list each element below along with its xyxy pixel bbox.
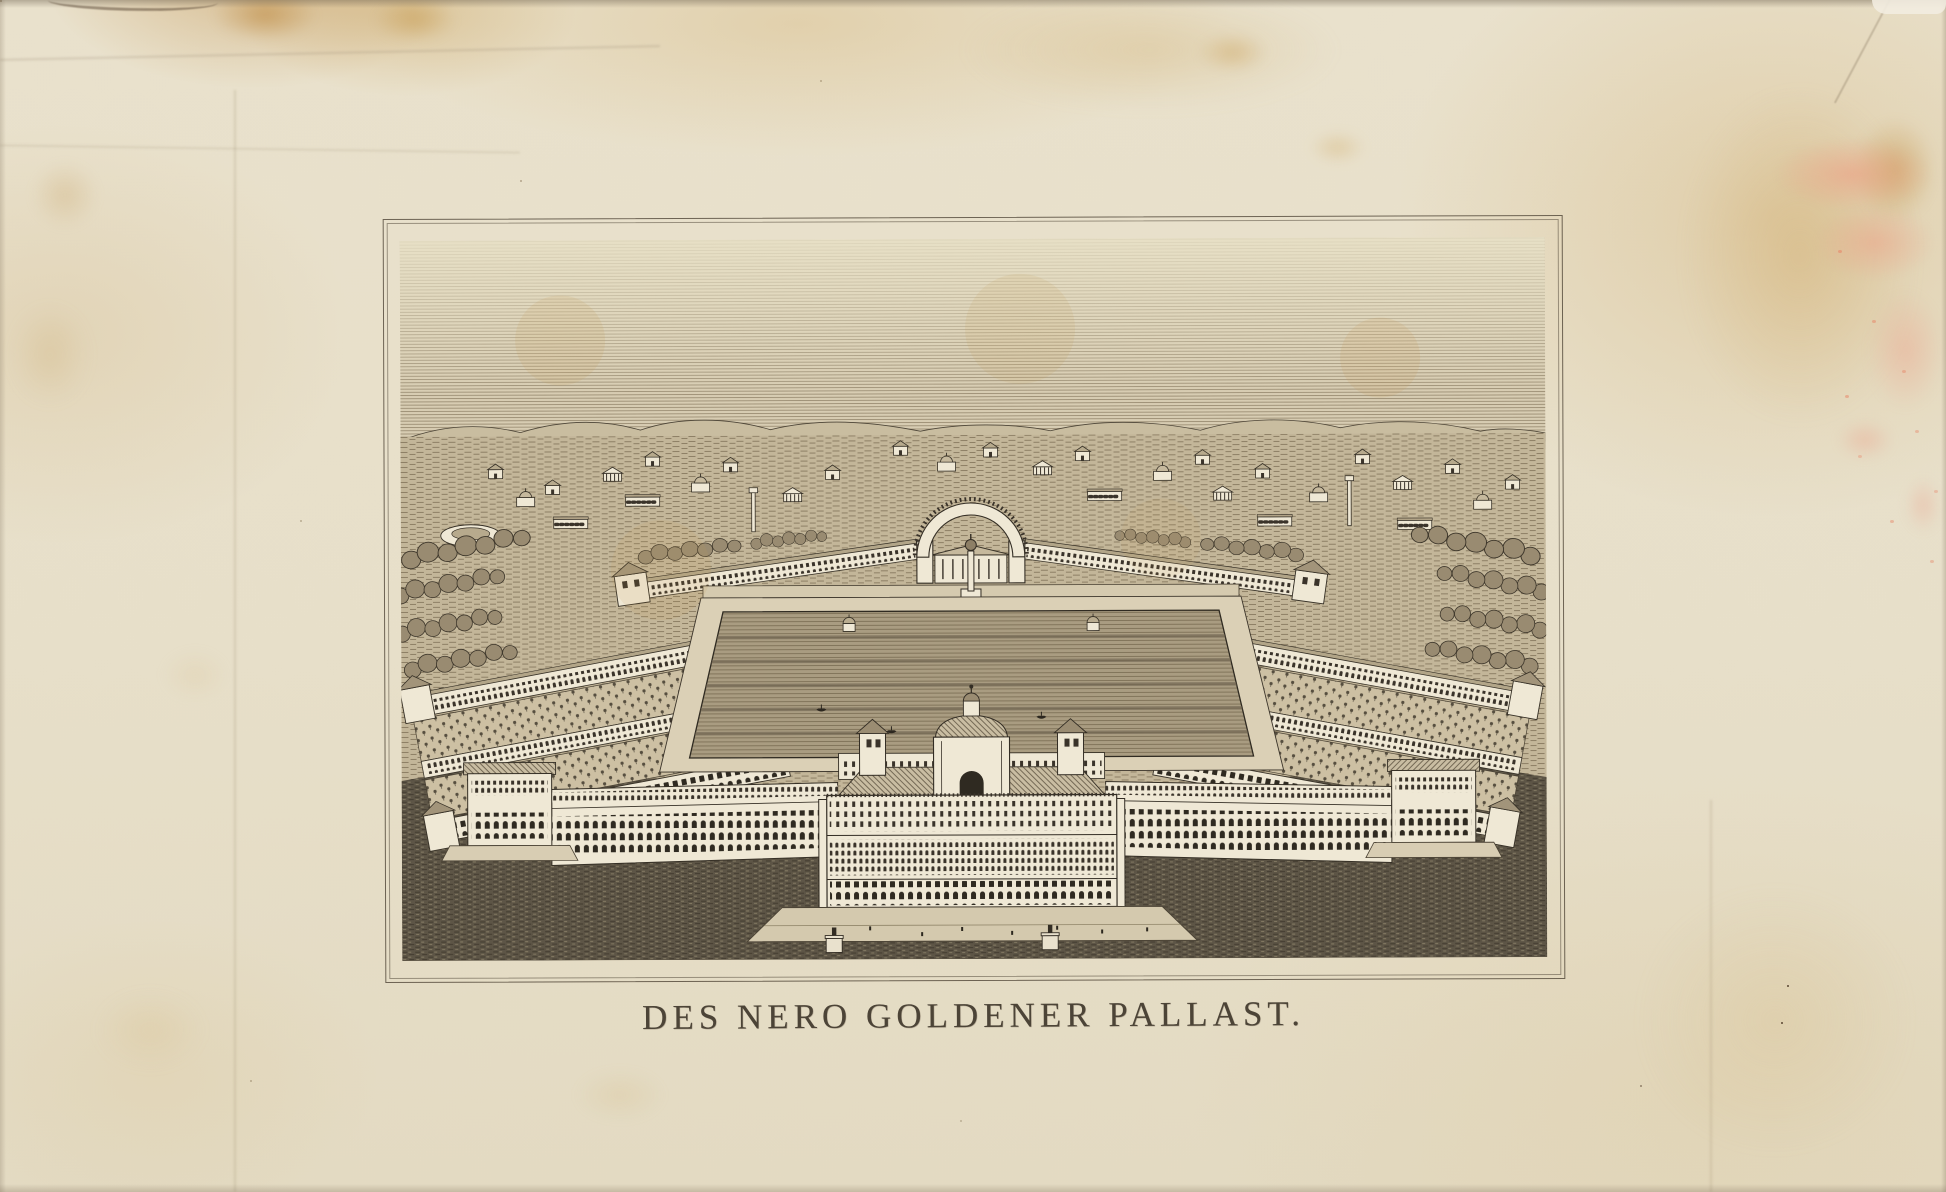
bottom-edge-shadow [0, 1184, 1946, 1192]
pink-stain [1755, 128, 1946, 220]
pencil-arc-mark [48, 0, 219, 14]
engraving-plate-frame [383, 215, 1566, 983]
vertical-crease [234, 90, 236, 1192]
foxing-stain [360, 0, 470, 50]
horizontal-crease [0, 45, 660, 61]
foxing-stain [1185, 25, 1280, 80]
foxing-stain [150, 640, 240, 710]
foxing-stain [20, 150, 110, 240]
photo-of-antique-engraving: { "print": { "caption": "DES NERO GOLDEN… [0, 0, 1946, 1192]
engraving-scene [400, 237, 1548, 961]
foxing-stain [80, 980, 220, 1080]
foxing-stain [1840, 100, 1946, 240]
pink-stain [1858, 275, 1946, 425]
horizontal-crease [0, 144, 520, 153]
pink-stain [1800, 195, 1946, 290]
corner-crack [1834, 0, 1892, 103]
foxing-stain [1650, 40, 1946, 470]
vertical-crease [1710, 800, 1712, 1192]
foxing-stain [1300, 125, 1375, 170]
paper-speckles [0, 0, 2, 2]
foxing-stain [900, 0, 1400, 130]
palace-esplanade [747, 906, 1197, 942]
left-edge-shadow [0, 0, 6, 1192]
foxing-stain [1600, 850, 1946, 1190]
foxing-stain [195, 0, 335, 50]
right-edge-shadow [1941, 0, 1946, 1192]
pink-stain [1830, 415, 1900, 465]
top-edge-shadow [0, 0, 1946, 8]
foxing-stain [560, 1060, 680, 1130]
pink-speckles [1838, 250, 1842, 253]
aged-paper-sheet: DES NERO GOLDENER PALLAST. [0, 0, 1946, 1192]
foxing-stain [0, 290, 100, 420]
top-right-chip [1872, 0, 1946, 14]
print-caption: DES NERO GOLDENER PALLAST. [385, 992, 1562, 1039]
pink-stain [1900, 470, 1946, 540]
